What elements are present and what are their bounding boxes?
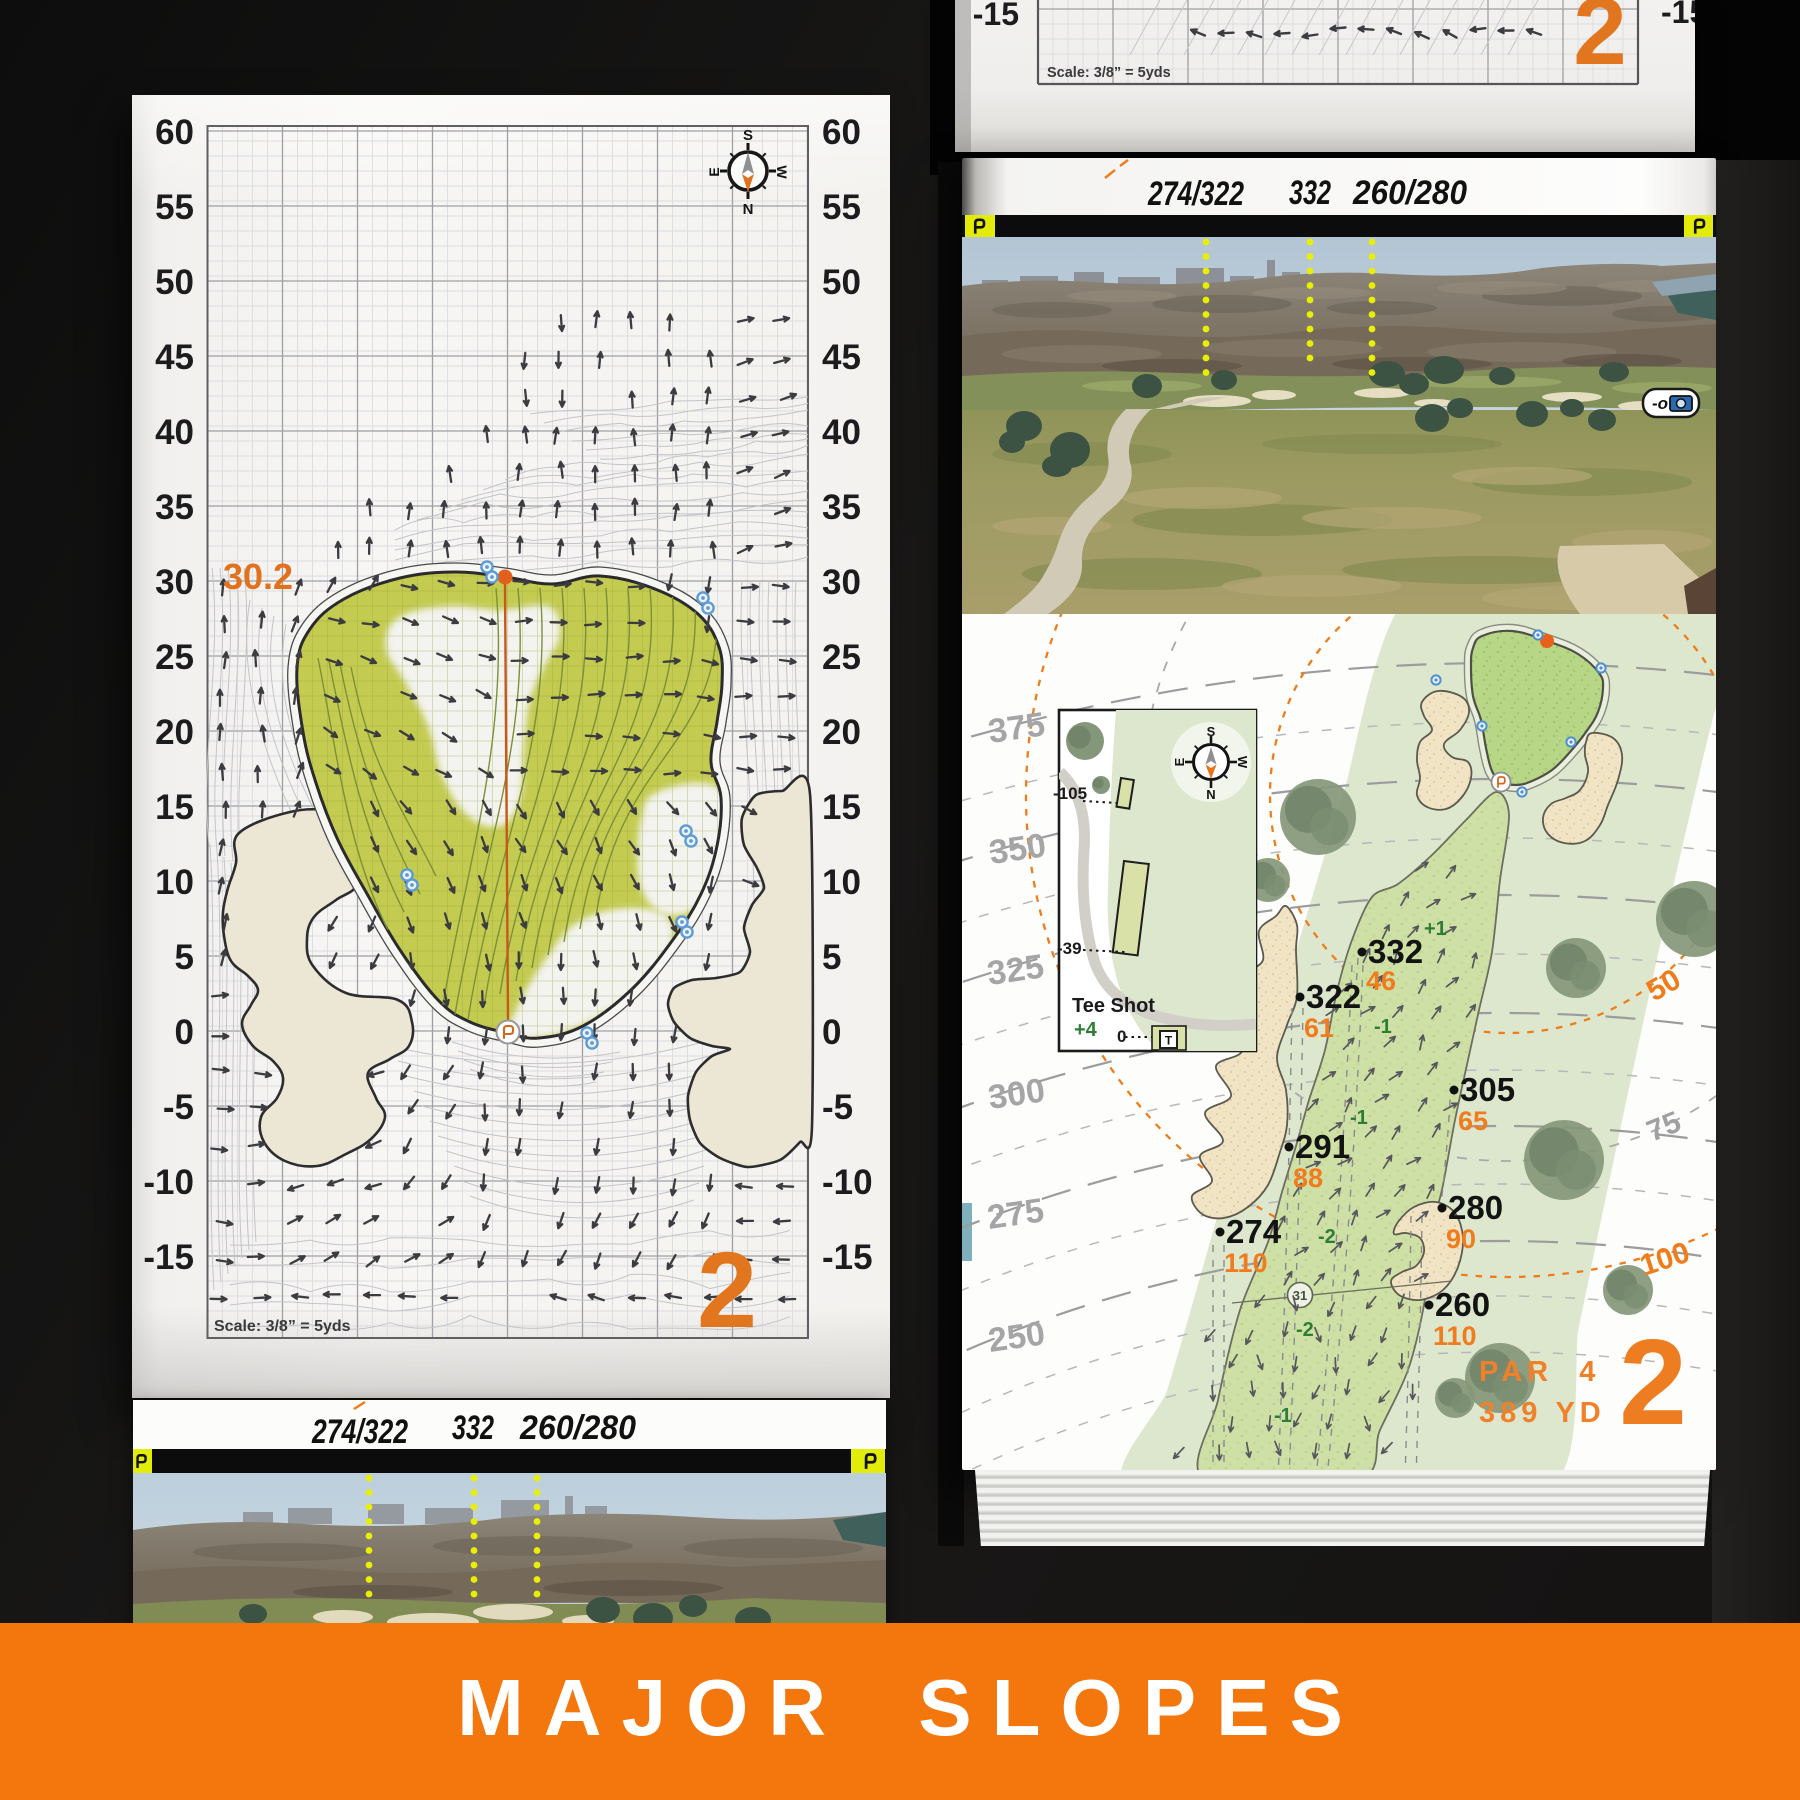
svg-text:50: 50 [822, 263, 861, 302]
svg-text:45: 45 [155, 338, 194, 377]
svg-text:+4: +4 [1074, 1019, 1098, 1041]
svg-text:350: 350 [987, 826, 1048, 872]
svg-text:35: 35 [822, 488, 861, 527]
svg-text:61: 61 [1304, 1013, 1334, 1043]
svg-text:-39: -39 [1057, 939, 1082, 958]
svg-text:291: 291 [1295, 1128, 1350, 1165]
svg-text:2: 2 [697, 1229, 757, 1350]
svg-text:332: 332 [452, 1409, 494, 1447]
svg-text:65: 65 [1458, 1106, 1488, 1136]
svg-text:-2: -2 [1318, 1226, 1336, 1248]
svg-text:274: 274 [1226, 1213, 1282, 1250]
svg-text:S: S [1207, 724, 1216, 739]
svg-text:30.2: 30.2 [223, 556, 293, 597]
svg-text:-15: -15 [143, 1238, 194, 1277]
svg-text:260/280: 260/280 [1352, 174, 1467, 212]
svg-text:2: 2 [1619, 1314, 1687, 1450]
svg-text:-10: -10 [143, 1163, 194, 1202]
svg-text:45: 45 [822, 338, 861, 377]
svg-text:-5: -5 [822, 1088, 853, 1127]
svg-text:25: 25 [822, 638, 861, 677]
svg-text:88: 88 [1293, 1163, 1323, 1193]
svg-text:60: 60 [155, 113, 194, 152]
svg-text:-15: -15 [973, 0, 1019, 32]
svg-text:-105: -105 [1053, 784, 1087, 803]
svg-text:-2: -2 [1296, 1319, 1314, 1341]
svg-text:-5: -5 [163, 1088, 194, 1127]
svg-text:40: 40 [822, 413, 861, 452]
svg-text:-10: -10 [822, 1163, 873, 1202]
svg-text:389 YD: 389 YD [1479, 1397, 1606, 1429]
svg-text:260/280: 260/280 [519, 1409, 636, 1447]
svg-text:+1: +1 [1424, 918, 1447, 940]
svg-text:60: 60 [822, 113, 861, 152]
svg-text:332: 332 [1368, 933, 1423, 970]
svg-text:260: 260 [1435, 1286, 1490, 1323]
svg-text:275: 275 [985, 1191, 1046, 1237]
svg-text:110: 110 [1433, 1321, 1477, 1351]
svg-text:15: 15 [155, 788, 194, 827]
svg-text:5: 5 [175, 938, 194, 977]
svg-text:20: 20 [155, 713, 194, 752]
svg-text:110: 110 [1224, 1248, 1268, 1278]
svg-text:S: S [743, 127, 753, 144]
svg-text:W: W [774, 165, 790, 179]
svg-text:PAR 4: PAR 4 [1479, 1356, 1600, 1388]
svg-text:Scale: 3/8” = 5yds: Scale: 3/8” = 5yds [1047, 65, 1171, 81]
svg-text:305: 305 [1460, 1071, 1515, 1108]
svg-text:274/322: 274/322 [1147, 175, 1244, 213]
svg-text:50: 50 [155, 263, 194, 302]
svg-text:35: 35 [155, 488, 194, 527]
svg-text:300: 300 [986, 1071, 1047, 1117]
svg-text:322: 322 [1306, 978, 1361, 1015]
svg-text:Tee Shot: Tee Shot [1072, 995, 1155, 1017]
svg-text:-15: -15 [1661, 0, 1695, 30]
svg-text:332: 332 [1289, 174, 1331, 212]
svg-text:Scale: 3/8” = 5yds: Scale: 3/8” = 5yds [214, 1318, 351, 1335]
svg-text:46: 46 [1366, 966, 1396, 996]
svg-text:55: 55 [822, 188, 861, 227]
svg-text:40: 40 [155, 413, 194, 452]
svg-text:E: E [706, 167, 722, 176]
svg-text:-15: -15 [822, 1238, 873, 1277]
svg-text:280: 280 [1448, 1189, 1503, 1226]
svg-text:-o: -o [1652, 394, 1668, 413]
svg-text:2: 2 [1573, 0, 1626, 85]
svg-text:E: E [1172, 757, 1187, 766]
svg-text:T: T [1165, 1034, 1173, 1048]
svg-text:0: 0 [822, 1013, 841, 1052]
svg-text:20: 20 [822, 713, 861, 752]
svg-text:5: 5 [822, 938, 841, 977]
svg-text:25: 25 [155, 638, 194, 677]
svg-text:55: 55 [155, 188, 194, 227]
svg-text:N: N [1206, 787, 1215, 802]
svg-text:10: 10 [155, 863, 194, 902]
svg-text:90: 90 [1446, 1224, 1476, 1254]
svg-text:W: W [1235, 756, 1250, 769]
svg-text:-1: -1 [1350, 1107, 1368, 1129]
svg-text:274/322: 274/322 [311, 1413, 408, 1451]
svg-text:325: 325 [985, 947, 1046, 993]
svg-text:30: 30 [155, 563, 194, 602]
svg-text:-1: -1 [1374, 1016, 1392, 1038]
svg-text:-1: -1 [1274, 1405, 1292, 1427]
svg-text:0: 0 [175, 1013, 194, 1052]
svg-text:10: 10 [822, 863, 861, 902]
svg-text:375: 375 [986, 705, 1047, 751]
svg-text:250: 250 [986, 1314, 1047, 1360]
svg-text:N: N [743, 201, 754, 218]
svg-text:15: 15 [822, 788, 861, 827]
svg-text:30: 30 [822, 563, 861, 602]
